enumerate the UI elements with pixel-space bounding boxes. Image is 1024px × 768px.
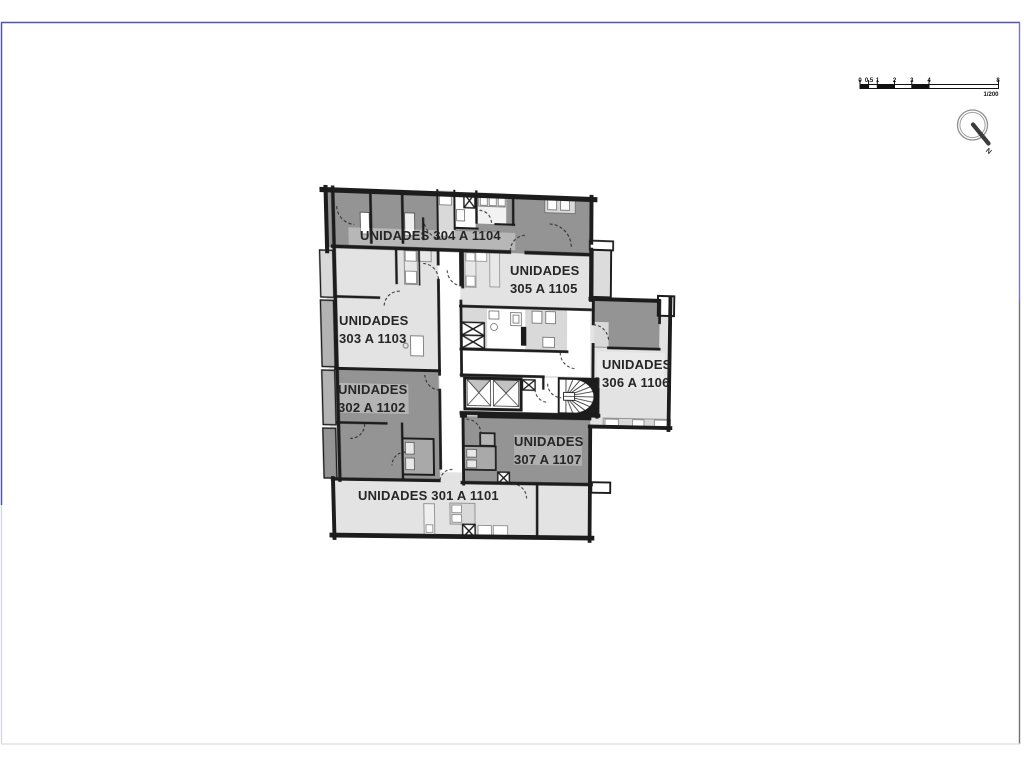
svg-text:4: 4 [927, 78, 931, 84]
svg-text:1/200: 1/200 [983, 92, 999, 98]
svg-text:8: 8 [996, 78, 1000, 84]
svg-text:2: 2 [893, 78, 897, 84]
svg-text:N: N [984, 147, 992, 156]
svg-text:0.5: 0.5 [865, 78, 874, 84]
svg-text:3: 3 [910, 78, 914, 84]
svg-text:1: 1 [876, 78, 880, 84]
svg-text:0: 0 [858, 78, 862, 84]
